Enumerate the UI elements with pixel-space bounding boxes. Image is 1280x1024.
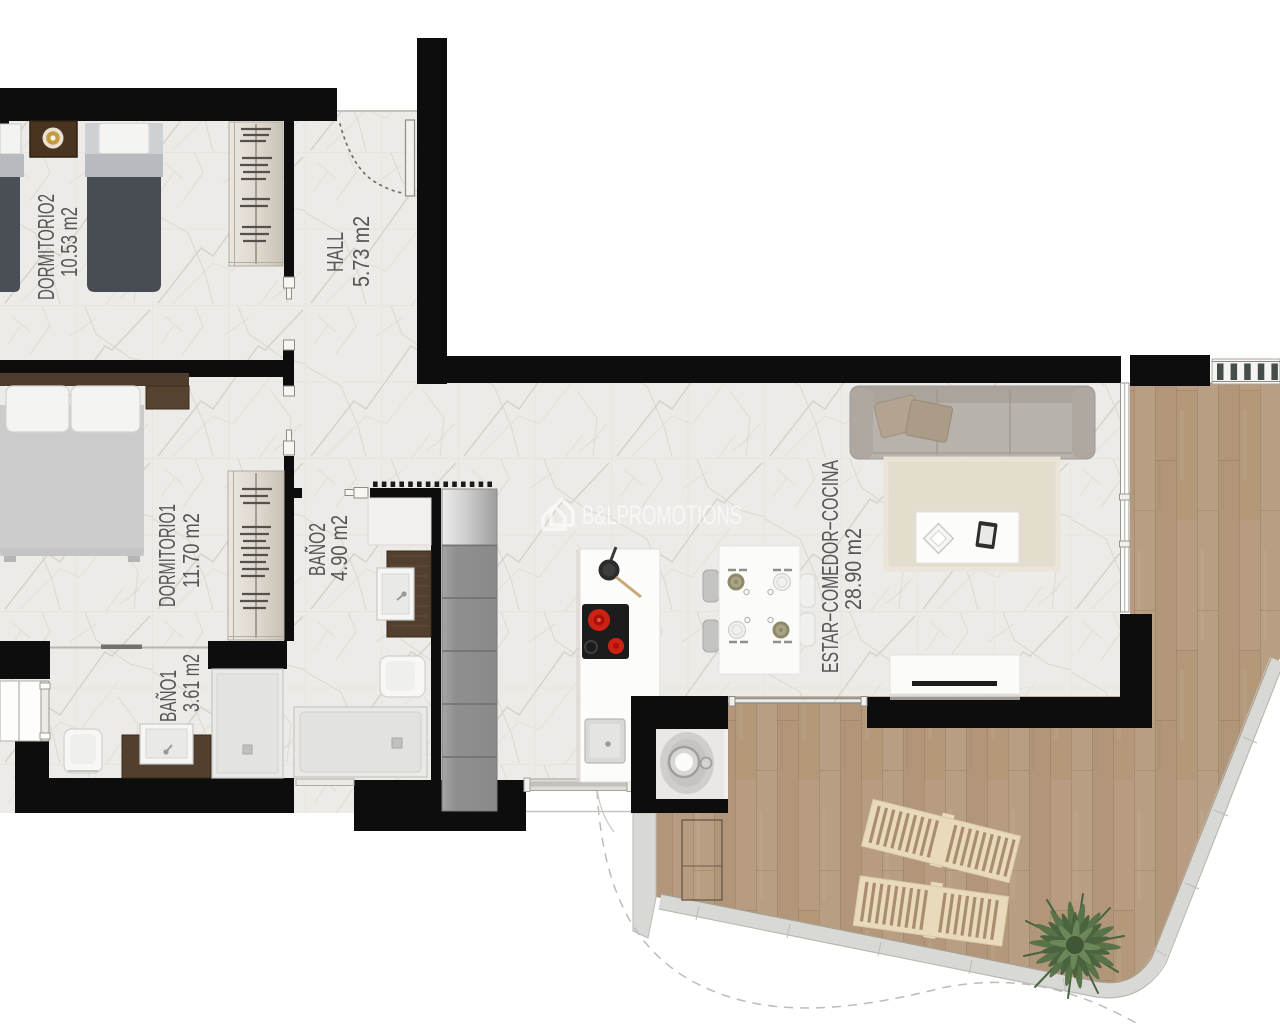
svg-text:4.90 m2: 4.90 m2 (326, 515, 352, 581)
svg-text:11.70 m2: 11.70 m2 (178, 513, 204, 588)
svg-text:10.53 m2: 10.53 m2 (56, 207, 82, 277)
svg-text:DORMITORIO1: DORMITORIO1 (154, 504, 180, 607)
svg-text:28.90 m2: 28.90 m2 (840, 528, 866, 610)
svg-text:B&LPROMOTIONS: B&LPROMOTIONS (582, 500, 742, 530)
svg-text:HALL: HALL (322, 232, 348, 272)
svg-text:3.61 m2: 3.61 m2 (178, 654, 204, 712)
svg-text:5.73 m2: 5.73 m2 (348, 216, 374, 287)
